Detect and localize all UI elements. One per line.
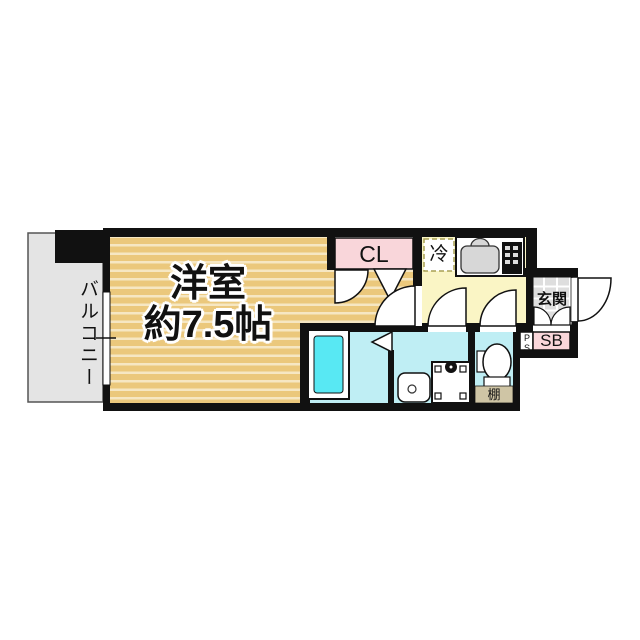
wall-top-left-block xyxy=(55,230,110,263)
shelf-label: 棚 xyxy=(475,387,513,403)
sink xyxy=(461,246,499,273)
wall-bath-divider xyxy=(388,350,394,403)
wall-room-right xyxy=(327,228,335,270)
entrance-door-arc xyxy=(578,278,611,321)
wall-bottom xyxy=(103,403,520,411)
fridge-label: 冷 xyxy=(424,240,454,270)
toilet-base xyxy=(484,377,510,387)
wall-entrance-top xyxy=(520,268,578,277)
entrance-label: 玄関 xyxy=(532,288,572,309)
floor-plan: バルコニー 洋室 約7.5帖 CL 冷 玄関 SB PS 棚 xyxy=(0,0,640,640)
wall-left-lower xyxy=(103,385,110,403)
balcony-label: バルコニー xyxy=(74,266,101,402)
closet-label: CL xyxy=(335,240,413,268)
room-label-line1: 洋室 xyxy=(108,264,308,305)
pipe-space-label: PS xyxy=(520,333,533,350)
washbasin-drain-icon xyxy=(408,385,416,393)
wall-top xyxy=(103,228,537,237)
toilet-bowl xyxy=(483,344,511,380)
wall-kitchen-right xyxy=(526,228,537,268)
washer-faucet-dot xyxy=(450,366,453,369)
shoebox-label: SB xyxy=(533,332,570,350)
room-label-line2: 約7.5帖 xyxy=(108,305,308,346)
entrance-door-opening xyxy=(571,278,578,322)
room-label: 洋室 約7.5帖 xyxy=(108,264,308,346)
bathtub xyxy=(314,336,343,393)
